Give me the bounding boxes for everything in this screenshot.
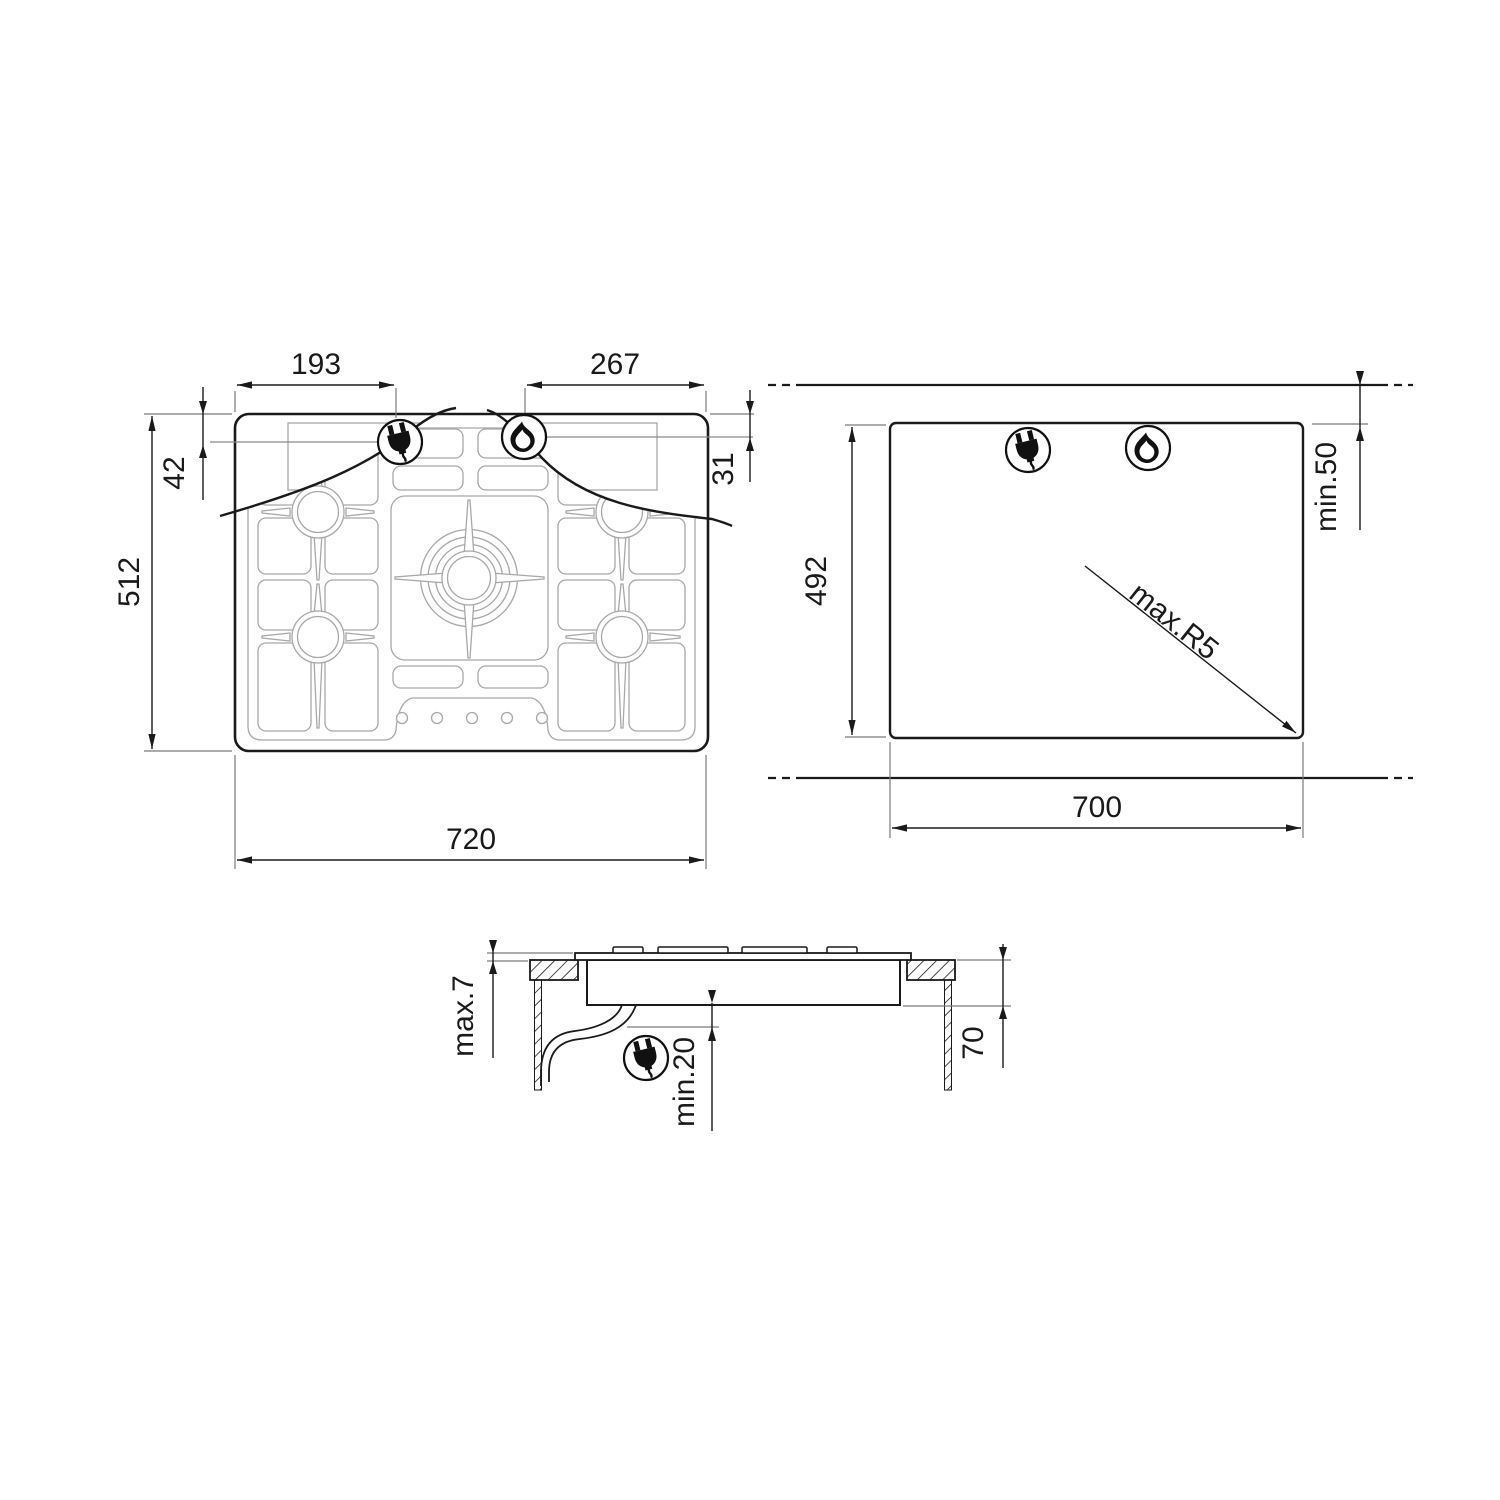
dim-label-193: 193: [291, 348, 341, 381]
hob-top-plate: [575, 953, 911, 960]
dim-label-492: 492: [800, 556, 833, 606]
burner-caps-profile: [613, 947, 857, 953]
dim-label-700: 700: [1072, 791, 1122, 824]
side-view: max.7 min.20 70: [447, 940, 1011, 1131]
power-cable: [541, 1005, 636, 1086]
dim-label-42: 42: [158, 456, 191, 489]
dim-label-720: 720: [446, 823, 496, 856]
diagram-canvas: 193 267 42 31 512 720: [0, 0, 1500, 1500]
dim-label-min50: min.50: [1310, 442, 1343, 532]
top-view: 193 267 42 31 512 720: [113, 348, 754, 869]
hob-installation-diagram: 193 267 42 31 512 720: [0, 0, 1500, 1500]
cabinet-side-right: [945, 980, 952, 1090]
worktop-section-left: [530, 960, 578, 980]
dim-label-31: 31: [707, 452, 740, 485]
flame-icon: [502, 415, 546, 459]
dim-label-512: 512: [113, 557, 146, 607]
worktop-section-right: [907, 960, 955, 980]
hob-body-section: [587, 960, 900, 1005]
cutout-rectangle: [890, 423, 1303, 738]
plug-icon: [378, 420, 422, 464]
plug-icon: [1006, 428, 1050, 472]
plug-icon: [624, 1036, 668, 1080]
flame-icon: [1126, 426, 1170, 470]
dim-label-267: 267: [590, 348, 640, 381]
dim-label-max7: max.7: [447, 975, 480, 1057]
dim-label-70: 70: [957, 1026, 990, 1059]
cutout-view: 492 700 min.50 max.R5: [768, 371, 1413, 838]
dim-label-min20: min.20: [668, 1037, 701, 1127]
